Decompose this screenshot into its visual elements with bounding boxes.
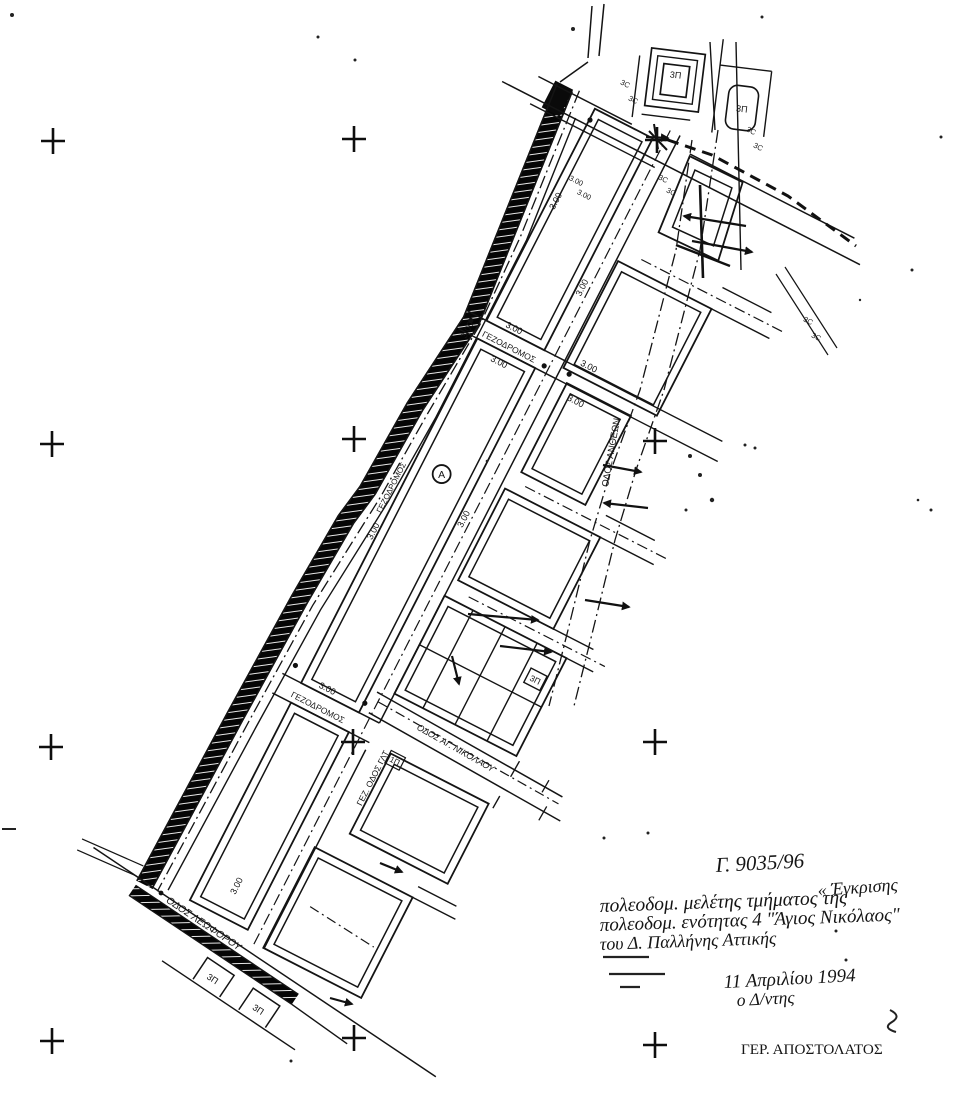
svg-text:Γ. 9035/96: Γ. 9035/96 [714, 848, 805, 877]
svg-text:ΓΕΡ. ΑΠΟΣΤΟΛΑΤΟΣ: ΓΕΡ. ΑΠΟΣΤΟΛΑΤΟΣ [741, 1041, 883, 1058]
svg-text:3Π: 3Π [669, 69, 682, 80]
svg-text:3Π: 3Π [736, 103, 749, 114]
svg-text:ο Δ/ντης: ο Δ/ντης [736, 987, 796, 1010]
svg-text:A: A [438, 469, 445, 481]
